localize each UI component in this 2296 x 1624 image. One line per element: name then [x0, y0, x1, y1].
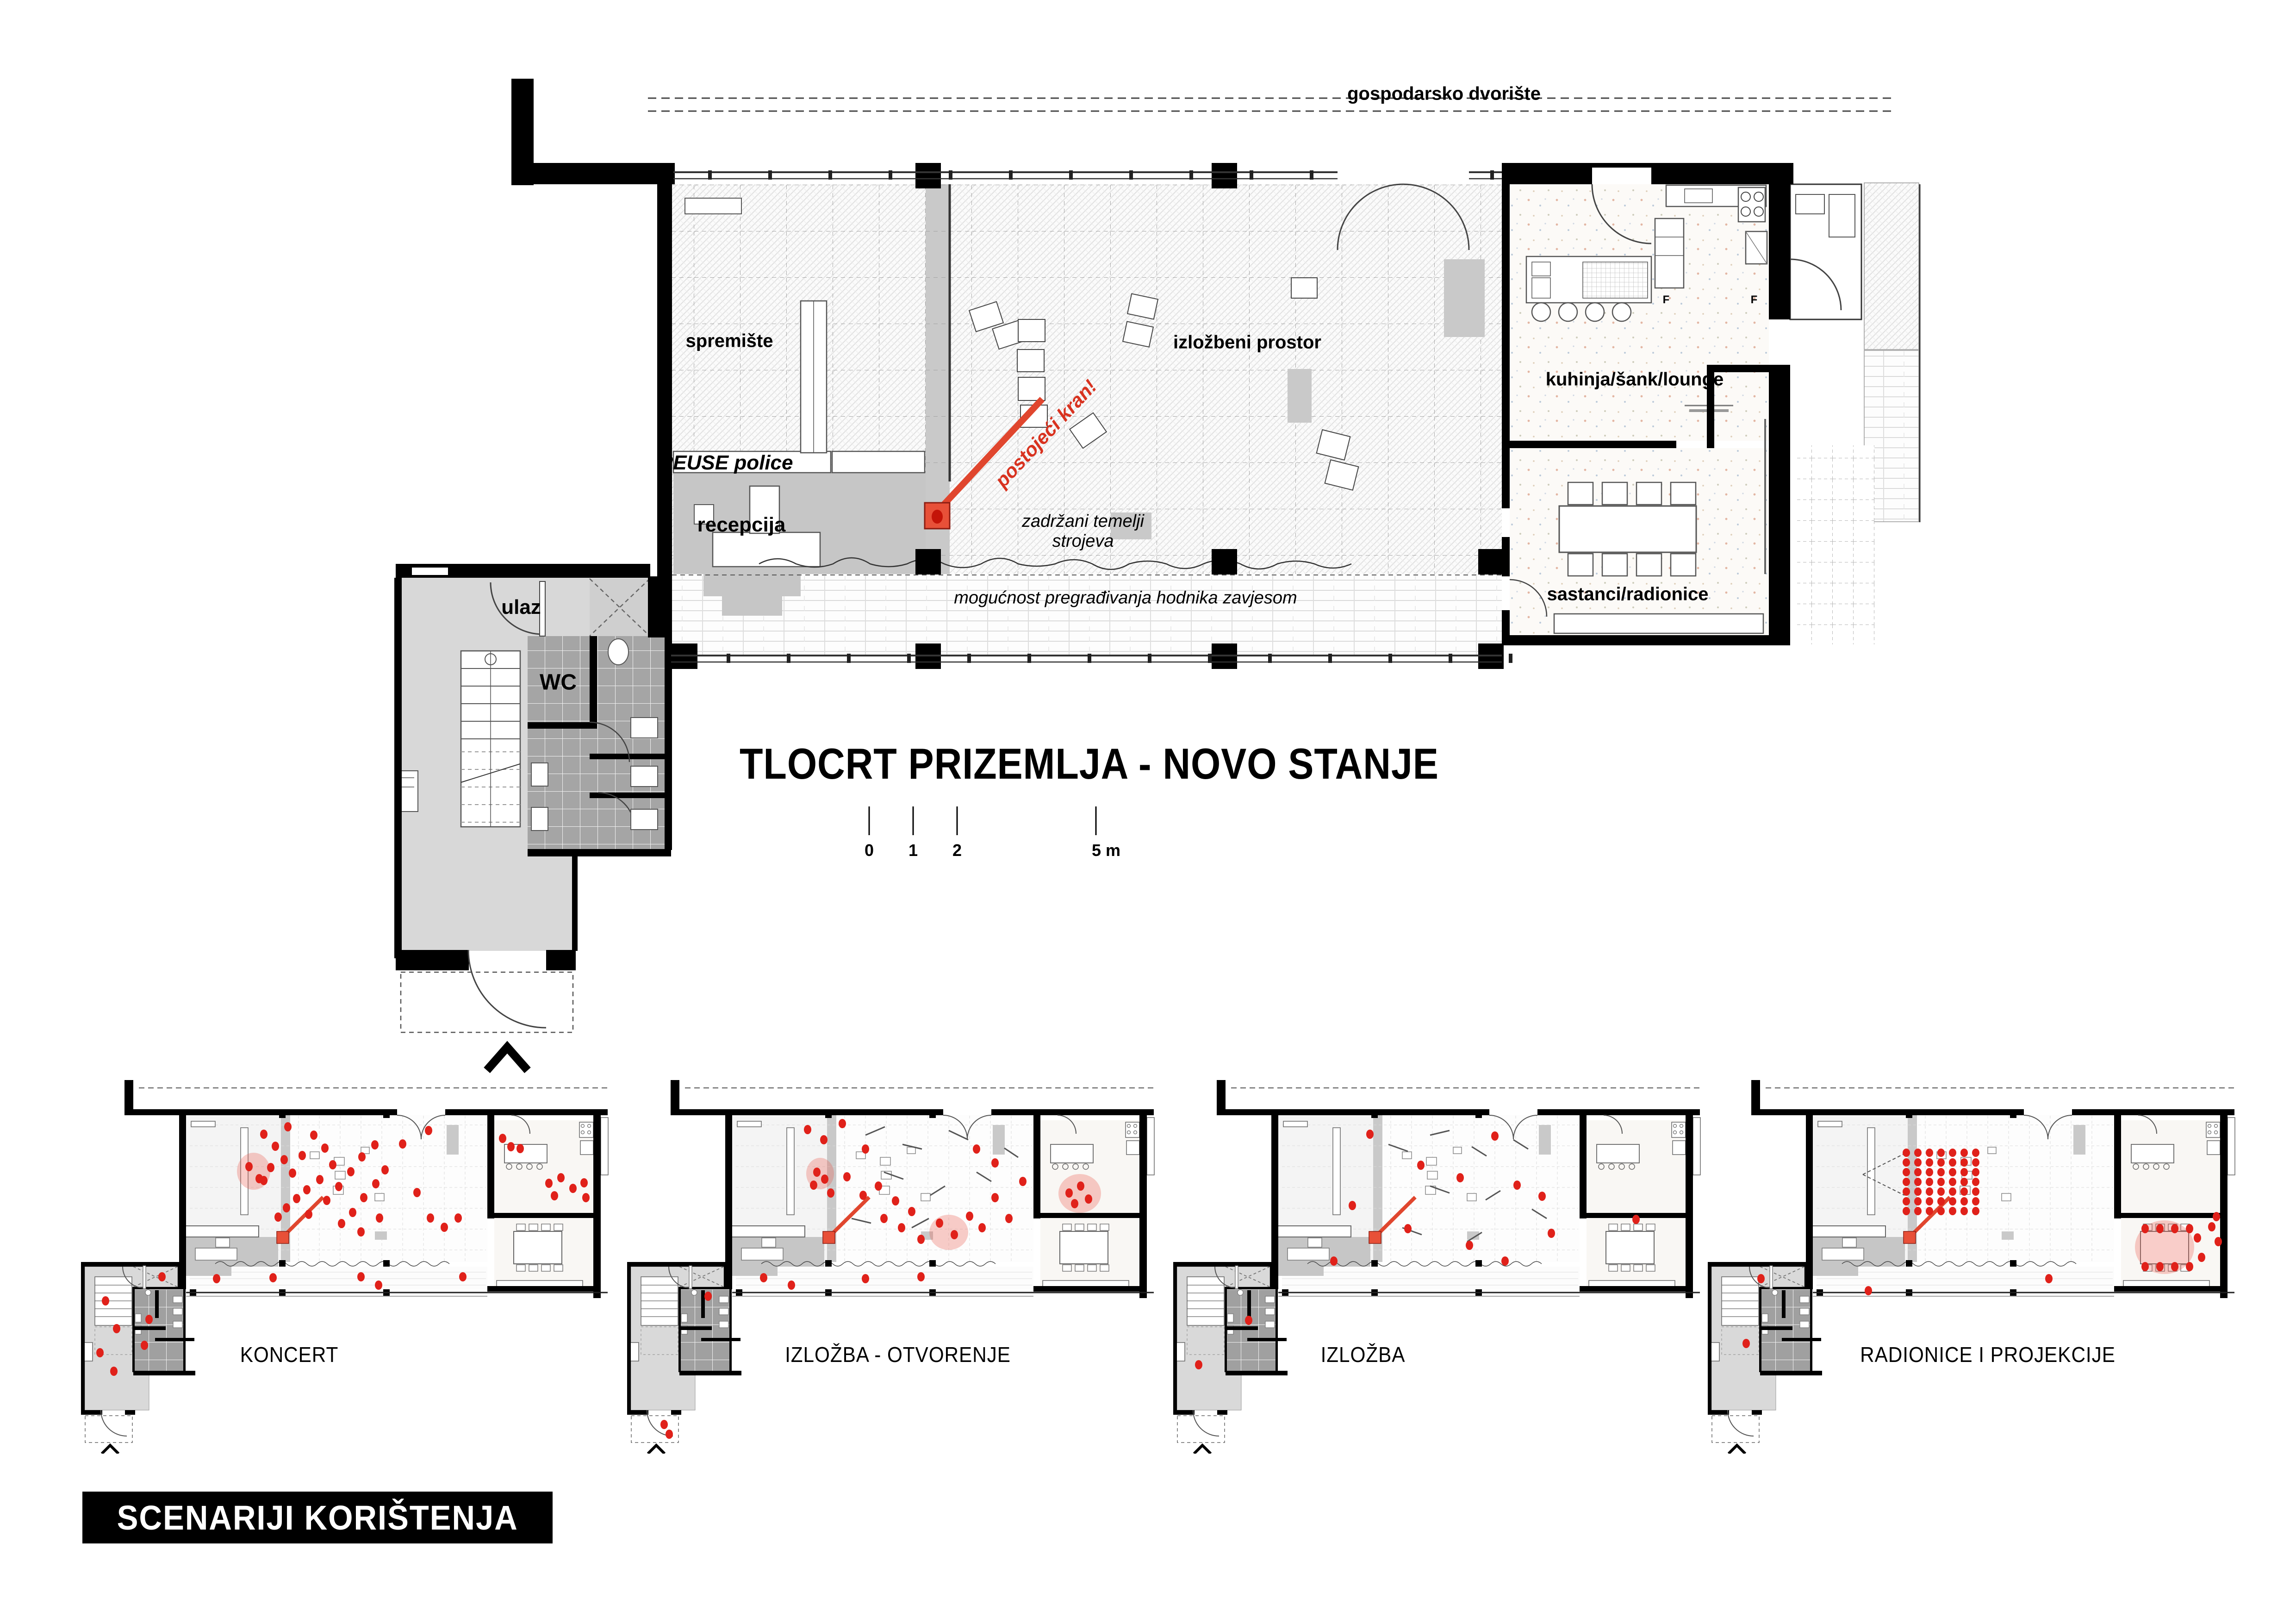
label-entrance: ulaz — [501, 596, 541, 619]
scenario-plan-radionice — [1705, 1079, 2235, 1454]
label-storage: spremište — [686, 331, 773, 352]
scenario-plan-izlozba — [1171, 1079, 1701, 1454]
scale-tick-5m: 5 m — [1092, 841, 1120, 860]
section-heading-text: SCENARIJI KORIŠTENJA — [117, 1498, 518, 1537]
architectural-sheet: gospodarsko dvorište spremište izložbeni… — [0, 0, 2296, 1624]
label-retained-foundations-line1: zadržani temelji — [1022, 512, 1144, 531]
label-appliance-f2: F — [1751, 294, 1758, 306]
label-meetings: sastanci/radionice — [1547, 584, 1708, 605]
label-reuse-shelves: REUSE police — [659, 451, 793, 475]
label-exhibition: izložbeni prostor — [1173, 332, 1321, 353]
label-scenario-radionice: RADIONICE I PROJEKCIJE — [1860, 1342, 2116, 1367]
mini-plan-geometry — [1173, 1080, 1700, 1454]
sheet-title: TLOCRT PRIZEMLJA - NOVO STANJE — [740, 739, 1439, 789]
label-scenario-koncert: KONCERT — [240, 1342, 339, 1367]
label-corridor-note: mogućnost pregrađivanja hodnika zavjesom — [954, 588, 1297, 608]
label-wc: WC — [540, 670, 577, 695]
label-reception: recepcija — [697, 513, 786, 537]
label-retained-foundations: zadržani temelji strojeva — [1022, 512, 1144, 551]
label-scenario-izlozba-otvorenje: IZLOŽBA - OTVORENJE — [785, 1342, 1011, 1367]
label-appliance-f1: F — [1663, 294, 1670, 306]
label-scenario-izlozba: IZLOŽBA — [1321, 1342, 1406, 1367]
scenario-plan-izlozba-otvorenje — [625, 1079, 1155, 1454]
main-plan-geometry — [394, 79, 1920, 1070]
label-retained-foundations-line2: strojeva — [1022, 531, 1144, 551]
mini-plan-geometry — [627, 1080, 1154, 1454]
scale-tick-0: 0 — [865, 841, 874, 860]
label-courtyard: gospodarsko dvorište — [1347, 84, 1541, 105]
scale-tick-1: 1 — [908, 841, 918, 860]
label-kitchen: kuhinja/šank/lounge — [1546, 369, 1724, 390]
mini-plan-geometry — [81, 1080, 608, 1454]
scale-tick-2: 2 — [952, 841, 962, 860]
section-heading-box: SCENARIJI KORIŠTENJA — [82, 1492, 553, 1543]
scenario-plan-koncert — [79, 1079, 609, 1454]
